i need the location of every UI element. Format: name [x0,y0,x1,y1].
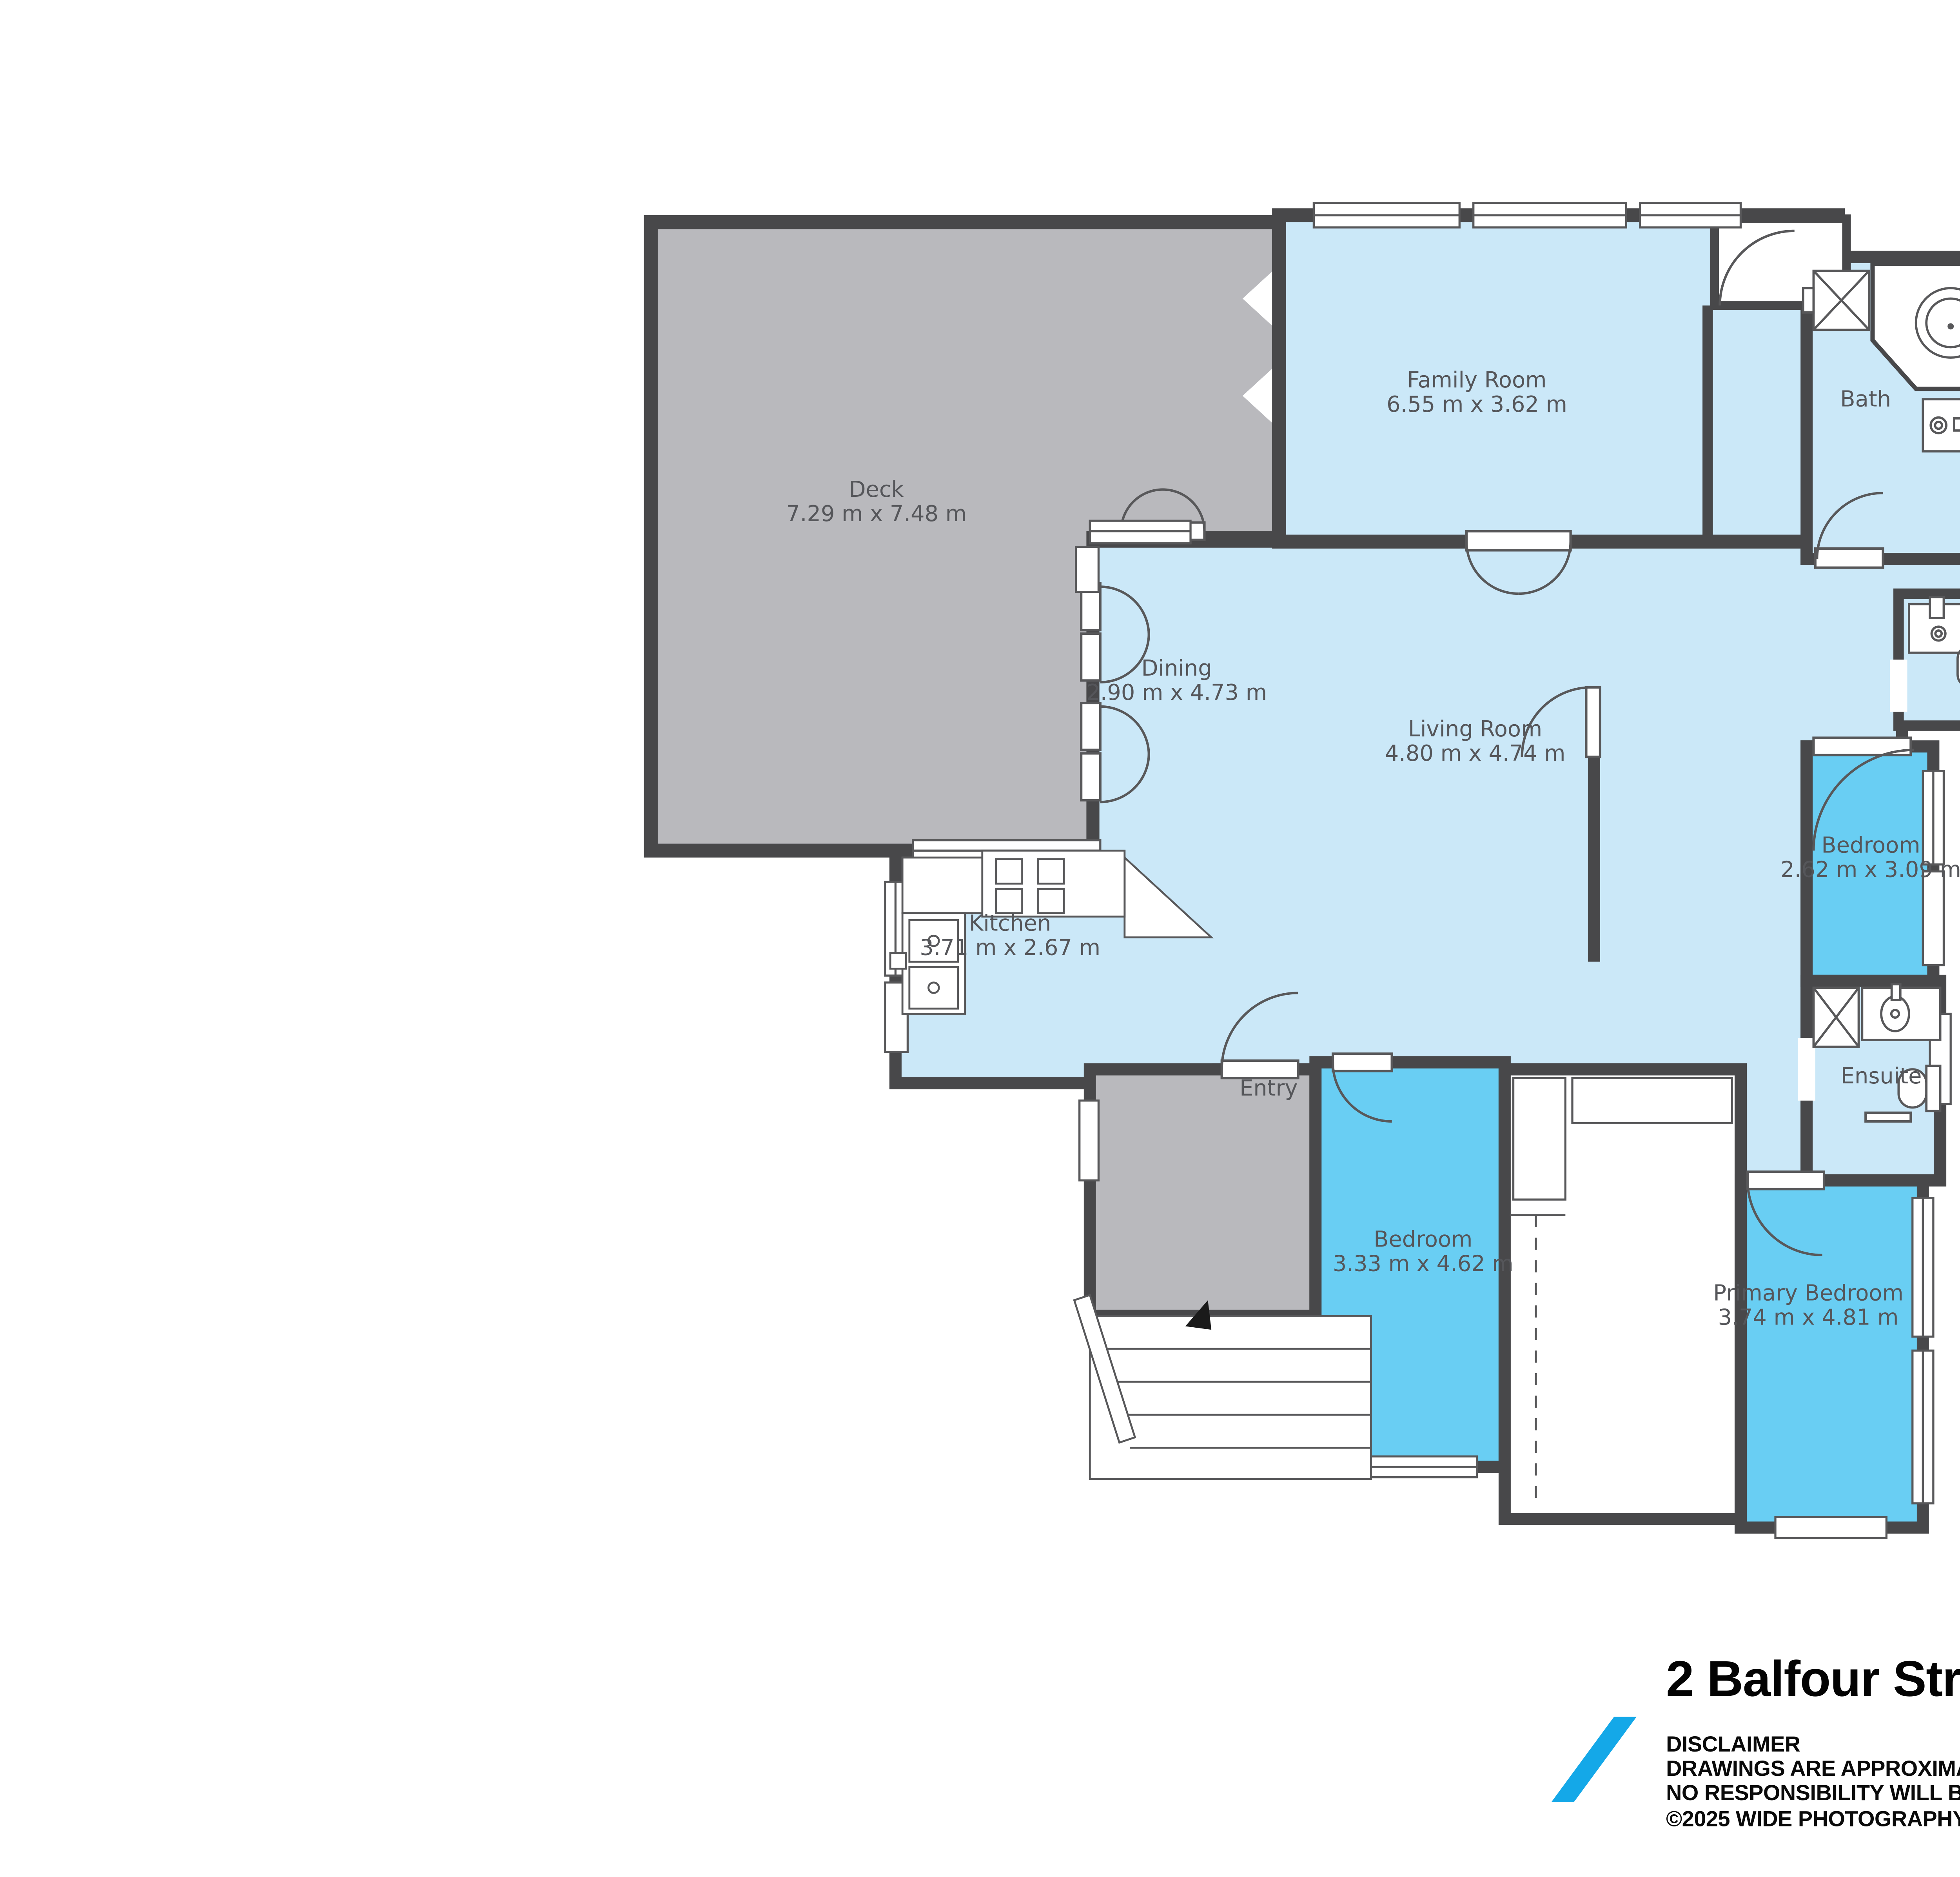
room-label-dining: Dining 2.90 m x 4.73 m [1086,656,1267,705]
disclaimer-block: DISCLAIMER DRAWINGS ARE APPROXIMATE AND … [1666,1732,1960,1831]
room-dims: 4.80 m x 4.74 m [1385,741,1566,765]
entry-porch-area [1090,1069,1316,1316]
disclaimer-heading: DISCLAIMER [1666,1732,1960,1757]
logo-slash-icon [1552,1717,1637,1802]
disclaimer-line: NO RESPONSIBILITY WILL BE TAKEN FOR ANY … [1666,1782,1960,1806]
room-name: Dining [1086,656,1267,680]
room-label-bedroom-small: Bedroom 2.62 m x 3.09 m [1780,834,1960,882]
room-name: Bedroom [1780,834,1960,858]
copyright-line: ©2025 WIDE PHOTOGRAPHY [1666,1806,1960,1831]
room-name: Kitchen [920,912,1100,936]
room-dims: 2.62 m x 3.09 m [1780,858,1960,881]
robe-icon [1514,1078,1566,1199]
room-dims: 2.90 m x 4.73 m [1086,680,1267,704]
room-label-living-room: Living Room 4.80 m x 4.74 m [1385,717,1566,765]
room-name: Bath [1840,387,1891,411]
room-name: Bedroom [1333,1228,1514,1252]
room-label-deck: Deck 7.29 m x 7.48 m [786,478,967,526]
room-dims: 3.33 m x 4.62 m [1333,1252,1514,1276]
floorplan-page: N Deck 7.29 m x 7.48 m Family Room 6.55 … [0,0,1960,1877]
room-label-family-room: Family Room 6.55 m x 3.62 m [1387,368,1567,416]
room-name: Entry [1240,1076,1298,1100]
page-title: 2 Balfour Street, Bayswater [1666,1653,1960,1710]
room-name: Living Room [1385,717,1566,741]
room-dims: 7.29 m x 7.48 m [786,502,967,525]
room-label-bedroom-second: Bedroom 3.33 m x 4.62 m [1333,1228,1514,1276]
room-dims: 3.74 m x 4.81 m [1713,1305,1903,1329]
room-name: Deck [786,478,967,502]
room-name: Ensuite [1841,1064,1922,1088]
room-name: Primary Bedroom [1713,1281,1903,1305]
room-label-primary-bedroom: Primary Bedroom 3.74 m x 4.81 m [1713,1281,1903,1330]
disclaimer-line: DRAWINGS ARE APPROXIMATE AND FOR ILLUSTR… [1666,1757,1960,1782]
room-dims: 3.71 m x 2.67 m [920,936,1100,959]
robe-icon [1572,1078,1732,1123]
stairs [1074,1295,1371,1479]
room-label-kitchen: Kitchen 3.71 m x 2.67 m [920,912,1100,960]
footer: 2 Balfour Street, Bayswater DISCLAIMER D… [1666,1653,1960,1831]
internal-wall [1588,757,1600,961]
room-name: Family Room [1387,368,1567,392]
internal-wall [1702,305,1713,541]
room-label-entry: Entry [1240,1076,1298,1100]
room-label-ensuite: Ensuite [1841,1064,1922,1088]
room-dims: 6.55 m x 3.62 m [1387,392,1567,416]
room-label-bath: Bath [1840,387,1891,411]
